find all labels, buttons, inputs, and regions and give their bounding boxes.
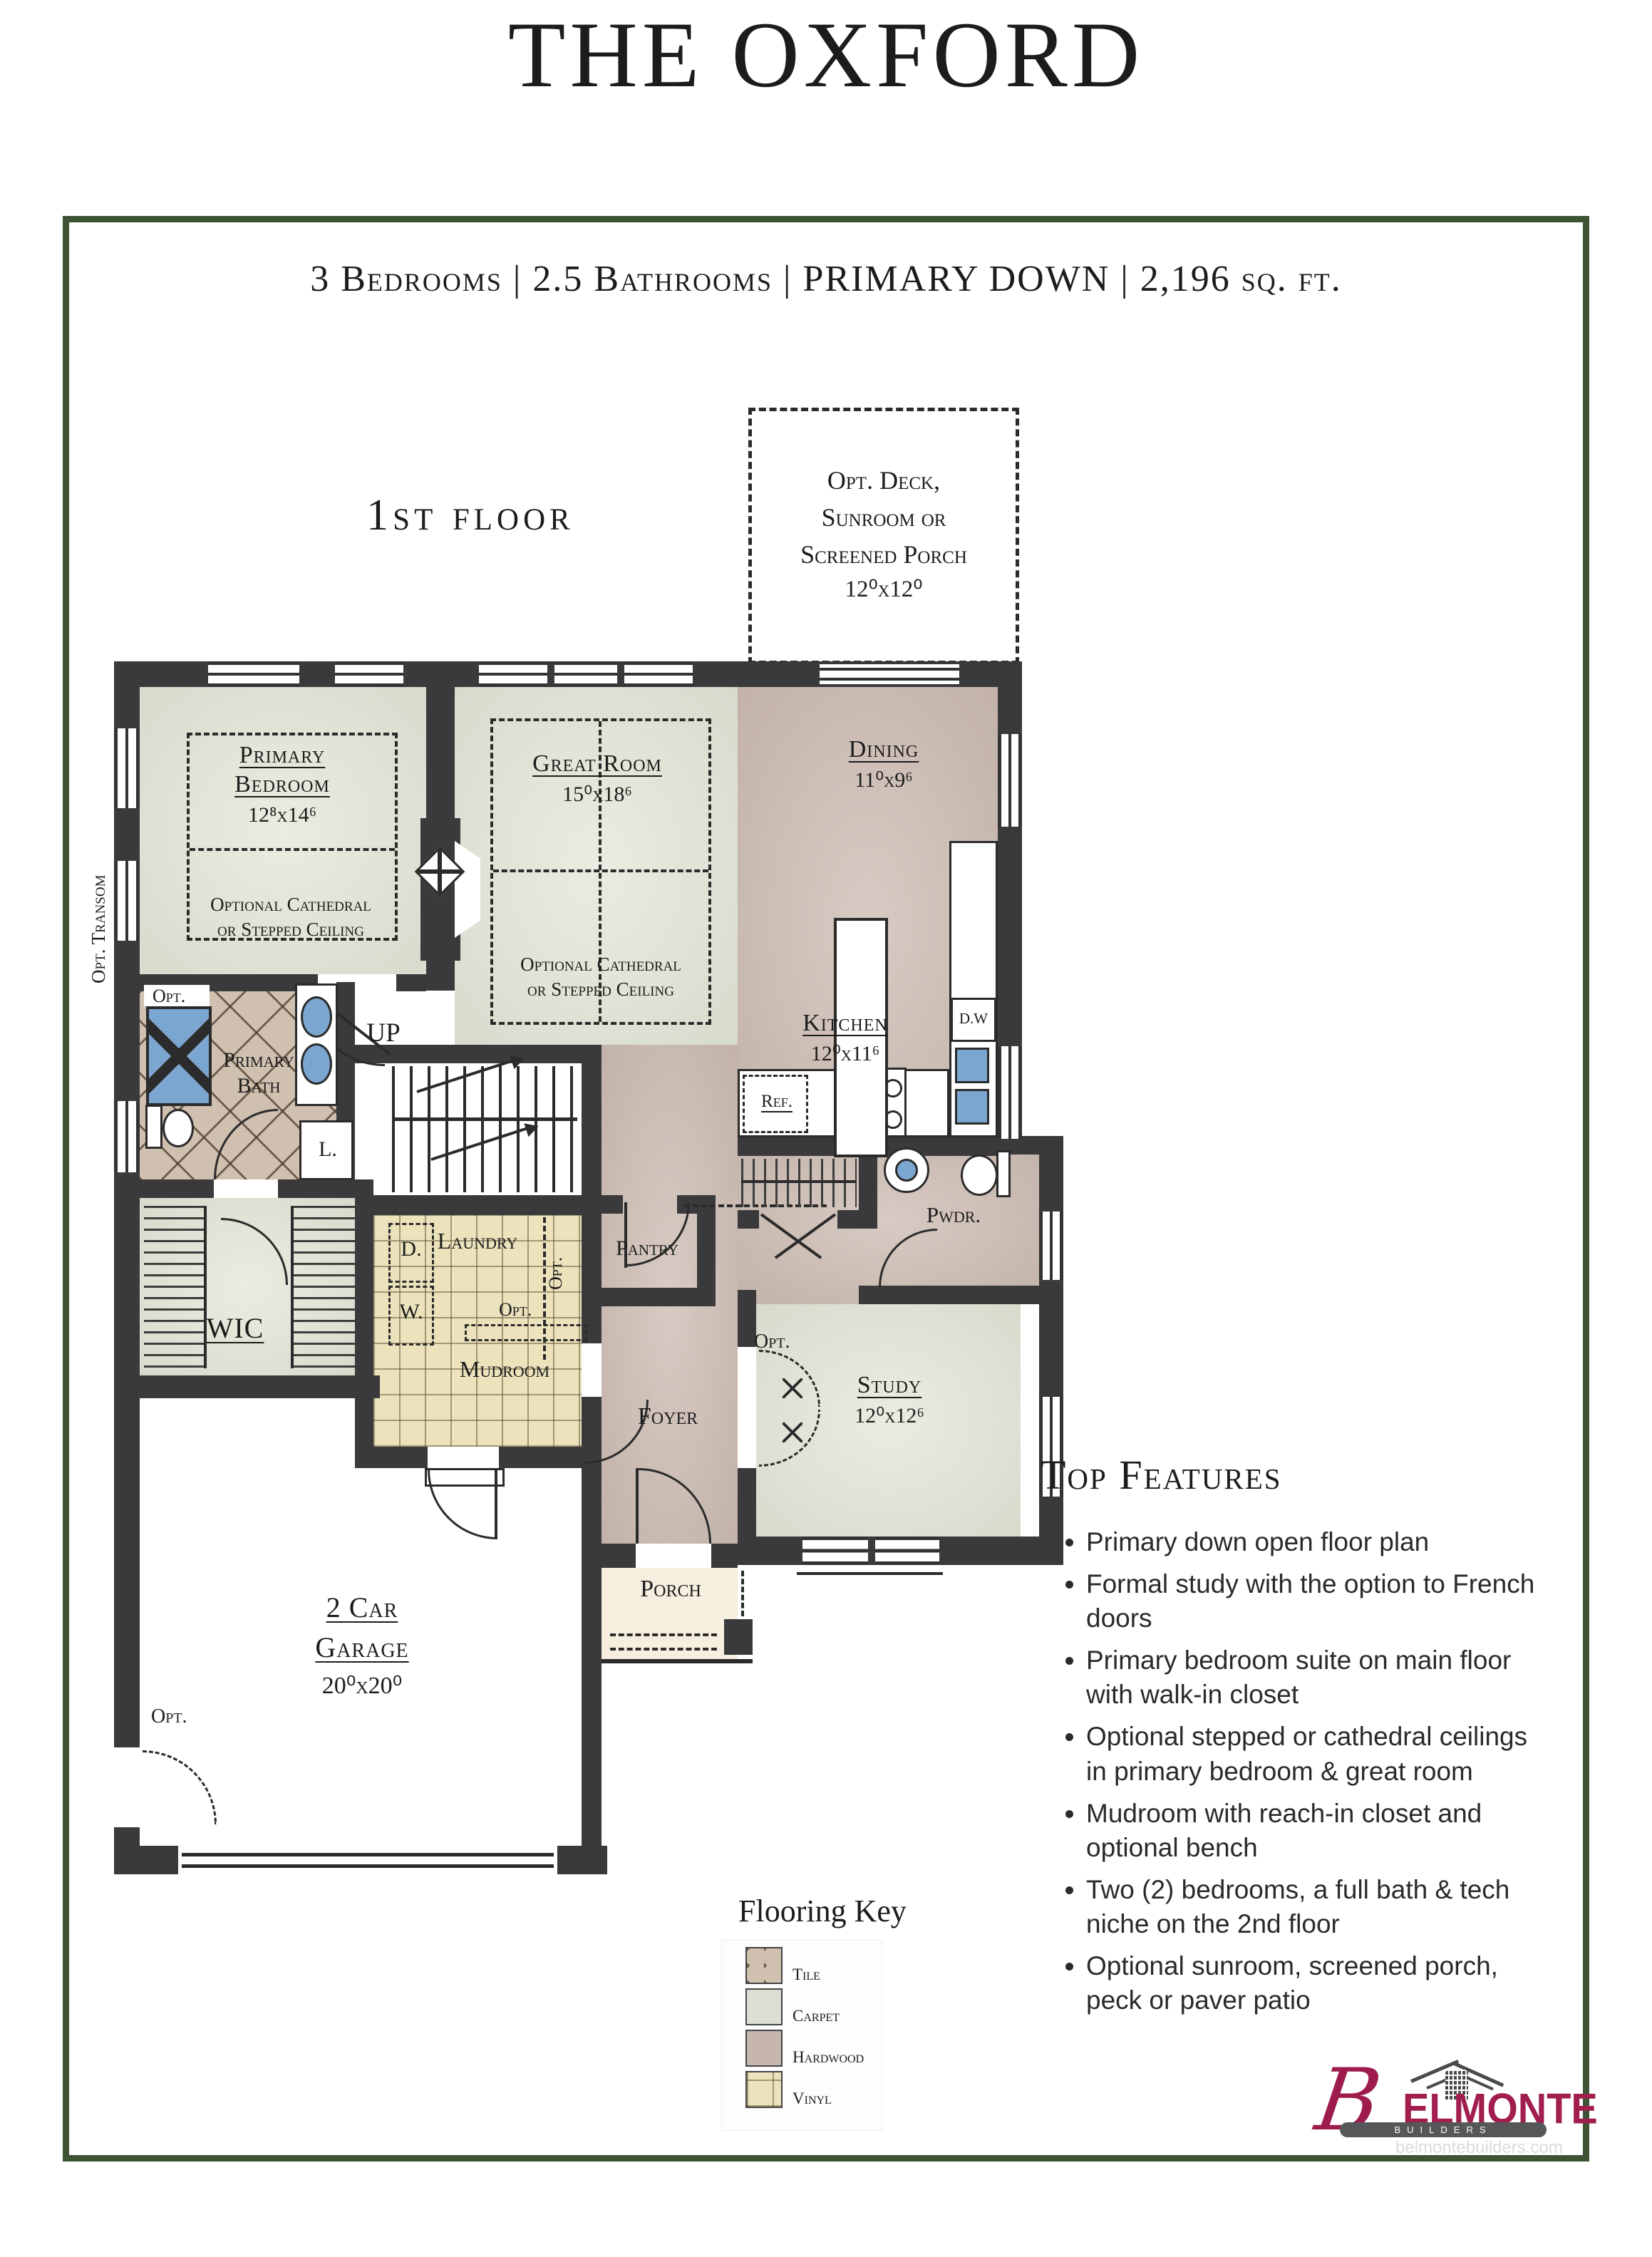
carpet-swatch [745, 1988, 783, 2025]
wall-wic-laundry [355, 1179, 373, 1468]
page-title: THE OXFORD [0, 0, 1652, 109]
feature-item: Primary down open floor plan [1086, 1525, 1548, 1559]
wall-exterior-right-lower [1039, 1136, 1063, 1565]
window-bedroom-left-1 [114, 728, 140, 808]
primary-bedroom-label: Primary Bedroom 12⁸x14⁶ [175, 741, 389, 828]
window-bedroom-left-2 [114, 861, 140, 941]
window-study-bottom-1 [802, 1536, 868, 1565]
wall-front-a [602, 1544, 636, 1568]
opt-transom-label: Opt. Transom [88, 770, 110, 983]
vinyl-swatch [745, 2071, 783, 2108]
garage-door-line-2 [182, 1864, 554, 1868]
window-mullion [547, 663, 554, 686]
refrigerator-label: Ref. [747, 1092, 807, 1112]
porch-step-dash-2 [610, 1648, 717, 1651]
study-opt-label: Opt. [754, 1331, 790, 1353]
bath-toilet-tank [145, 1105, 162, 1149]
stairs-up-label: UP [355, 1018, 412, 1048]
garage-door-opening [178, 1846, 557, 1874]
floor-label: 1st floor [335, 490, 606, 541]
window-bedroom-top-2 [335, 661, 403, 687]
wall-mudroom-bottom-a [355, 1447, 428, 1468]
kitchen-label: Kitchen 12⁰x11⁶ [760, 1009, 931, 1067]
feature-item: Primary bedroom suite on main floor with… [1086, 1643, 1548, 1712]
powder-sink [895, 1159, 918, 1182]
garage-door-line-1 [182, 1853, 554, 1856]
porch-post [724, 1619, 753, 1655]
laundry-opt-label: Opt. [546, 1212, 567, 1290]
window-bath-left [114, 1101, 140, 1172]
wic-hanging-rod-right [292, 1206, 355, 1368]
wall-bath-bottom-b [278, 1179, 355, 1198]
linen-label: L. [306, 1137, 349, 1161]
dining-label: Dining 11⁰x9⁶ [777, 735, 991, 793]
door-leaf-garage-entry [495, 1470, 497, 1539]
wall-pantry-bottom [582, 1288, 716, 1306]
features-heading: Top Features [1041, 1451, 1282, 1499]
vinyl-label: Vinyl [793, 2090, 832, 2108]
garage-label: 2 Car Garage 20⁰x20⁰ [262, 1591, 462, 1701]
window-bedroom-top-1 [208, 661, 299, 687]
porch-edge [602, 1659, 753, 1663]
washer-label: W. [393, 1300, 429, 1323]
wall-closet-bottom-a [738, 1210, 759, 1229]
feature-item: Two (2) bedrooms, a full bath & tech nic… [1086, 1873, 1548, 1941]
pantry-label: Pantry [597, 1236, 697, 1261]
feature-item: Optional stepped or cathedral ceilings i… [1086, 1720, 1548, 1788]
carpet-label: Carpet [793, 2007, 840, 2025]
reach-in-closet [741, 1159, 857, 1207]
window-mullion [617, 663, 624, 686]
wall-bedroom-bottom-b [396, 974, 426, 991]
primary-bath-label: Primary Bath [198, 1048, 319, 1099]
mudroom-opt-bench [465, 1324, 587, 1341]
stair-rail [392, 1117, 577, 1121]
greatroom-ceiling-note: Optional Cathedral or Stepped Ceiling [489, 952, 713, 1002]
mudroom-label: Mudroom [419, 1355, 590, 1383]
logo-website: belmontebuilders.com [1395, 2138, 1563, 2158]
feature-item: Formal study with the option to French d… [1086, 1567, 1548, 1636]
tile-swatch [745, 1947, 783, 1984]
shower-opt-label: Opt. [153, 986, 185, 1007]
wall-garage-right [582, 1468, 602, 1874]
wall-powder-bottom [859, 1286, 1039, 1304]
stairs-floor [373, 1063, 582, 1195]
wall-bath-bottom-a [140, 1179, 214, 1198]
flooring-key-title: Flooring Key [738, 1893, 907, 1929]
porch-step-dash-1 [610, 1633, 717, 1636]
features-list: Primary down open floor plan Formal stud… [1053, 1525, 1548, 2025]
porch-screen-dashed [741, 1571, 744, 1616]
window-powder-right [1039, 1212, 1063, 1280]
belmonte-logo: B ELMONTE BUILDERS belmontebuilders.com [1311, 2045, 1561, 2159]
powder-label: Pwdr. [897, 1202, 1011, 1228]
door-leaf-front [636, 1468, 639, 1544]
foyer-label: Foyer [614, 1403, 721, 1432]
bench-opt-label: Opt. [499, 1300, 532, 1321]
feature-item: Mudroom with reach-in closet and optiona… [1086, 1797, 1548, 1865]
window-kitchen-right [998, 1046, 1022, 1139]
plan-specs: 3 Bedrooms | 2.5 Bathrooms | PRIMARY DOW… [86, 258, 1566, 300]
slider-door-deck [820, 664, 959, 684]
powder-toilet-tank [996, 1150, 1011, 1197]
floor-plan-sheet: { "title": "THE OXFORD", "subtitle": "3 … [0, 0, 1652, 2257]
porch-label: Porch [617, 1575, 724, 1604]
bedroom-ceiling-note: Optional Cathedral or Stepped Ceiling [184, 892, 398, 942]
tile-label: Tile [793, 1966, 820, 1984]
front-door-opening [636, 1544, 711, 1568]
wall-study-left-b [738, 1468, 756, 1546]
study-label: Study 12⁰x12⁶ [790, 1371, 989, 1429]
wall-front-b [711, 1544, 738, 1568]
dryer-label: D. [393, 1237, 429, 1261]
garage-side-door-opening [114, 1747, 140, 1827]
wic-label: WIC [171, 1311, 299, 1346]
wall-closet-bottom-b [837, 1210, 877, 1229]
wall-bedroom-greatroom [426, 661, 455, 818]
window-sill-line [797, 1572, 943, 1575]
dishwasher-label: D.W [951, 1011, 996, 1027]
window-study-bottom-2 [875, 1536, 939, 1565]
powder-toilet-bowl [961, 1155, 998, 1196]
feature-item: Optional sunroom, screened porch, peck o… [1086, 1949, 1548, 2018]
window-greatroom-top [479, 661, 693, 687]
wall-bedroom-greatroom-low [426, 961, 455, 991]
logo-builders-bar: BUILDERS [1340, 2122, 1547, 2137]
hardwood-label: Hardwood [793, 2048, 864, 2067]
bath-toilet-bowl [162, 1109, 194, 1147]
window-dining-right [998, 734, 1022, 827]
kitchen-sink-1 [955, 1048, 989, 1083]
wall-wic-bottom [114, 1375, 380, 1398]
hardwood-swatch [745, 2030, 783, 2067]
kitchen-sink-2 [955, 1089, 989, 1125]
opt-deck-label: Opt. Deck, Sunroom or Screened Porch 12⁰… [755, 428, 1012, 641]
bath-sink-1 [301, 996, 332, 1038]
wall-pantry-top-a [602, 1195, 623, 1214]
great-room-label: Great Room 15⁰x18⁶ [489, 750, 706, 807]
garage-opt-label: Opt. [151, 1706, 187, 1728]
